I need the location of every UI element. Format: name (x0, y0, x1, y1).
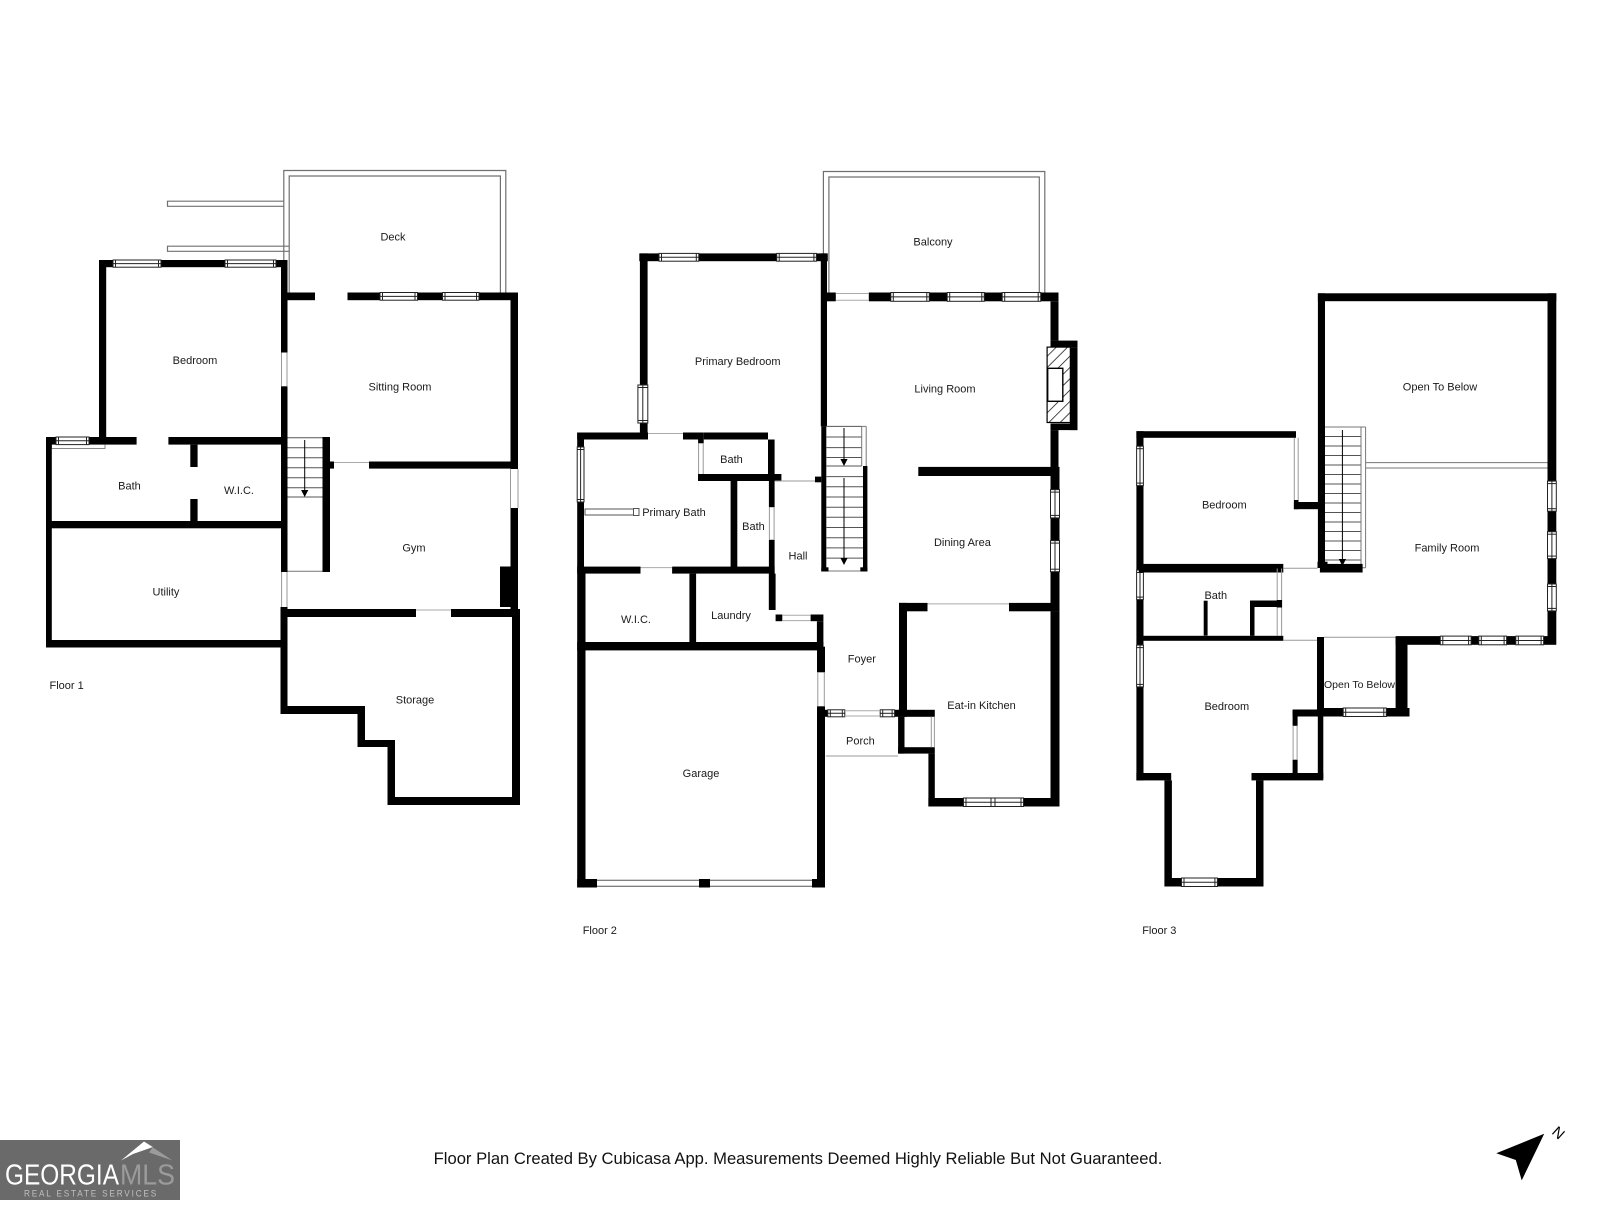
svg-text:Primary Bedroom: Primary Bedroom (695, 356, 781, 368)
svg-text:Floor 1: Floor 1 (50, 680, 84, 692)
svg-text:Balcony: Balcony (913, 237, 953, 249)
svg-text:Garage: Garage (683, 768, 720, 780)
svg-text:Bath: Bath (118, 481, 141, 493)
svg-text:Laundry: Laundry (711, 610, 751, 622)
svg-text:Foyer: Foyer (848, 653, 876, 665)
svg-text:MLS: MLS (120, 1160, 175, 1192)
svg-text:Porch: Porch (846, 736, 875, 748)
svg-text:Floor Plan Created By Cubicasa: Floor Plan Created By Cubicasa App. Meas… (434, 1149, 1163, 1168)
svg-text:Deck: Deck (380, 232, 406, 244)
svg-text:Storage: Storage (396, 695, 435, 707)
svg-text:Dining Area: Dining Area (934, 537, 992, 549)
svg-text:Sitting Room: Sitting Room (369, 382, 432, 394)
svg-text:Bedroom: Bedroom (173, 355, 218, 367)
svg-text:Hall: Hall (789, 551, 808, 563)
svg-text:GEORGIA: GEORGIA (5, 1160, 120, 1192)
svg-text:Floor 3: Floor 3 (1142, 925, 1176, 937)
svg-text:Living Room: Living Room (914, 384, 975, 396)
svg-text:Eat-in Kitchen: Eat-in Kitchen (947, 700, 1015, 712)
svg-text:Gym: Gym (402, 543, 425, 555)
svg-text:Bath: Bath (1204, 590, 1227, 602)
svg-text:Bedroom: Bedroom (1204, 701, 1249, 713)
svg-text:Bedroom: Bedroom (1202, 500, 1247, 512)
svg-text:Bath: Bath (742, 521, 765, 533)
svg-text:Family Room: Family Room (1415, 543, 1480, 555)
svg-text:W.I.C.: W.I.C. (224, 485, 254, 497)
svg-text:Floor 2: Floor 2 (583, 925, 617, 937)
svg-text:Bath: Bath (720, 454, 743, 466)
svg-text:Primary Bath: Primary Bath (642, 507, 706, 519)
svg-text:REAL ESTATE SERVICES: REAL ESTATE SERVICES (24, 1189, 158, 1199)
svg-text:Utility: Utility (153, 587, 180, 599)
svg-text:Open To Below: Open To Below (1403, 382, 1477, 394)
svg-text:Open To Below: Open To Below (1324, 679, 1395, 691)
svg-text:W.I.C.: W.I.C. (621, 614, 651, 626)
